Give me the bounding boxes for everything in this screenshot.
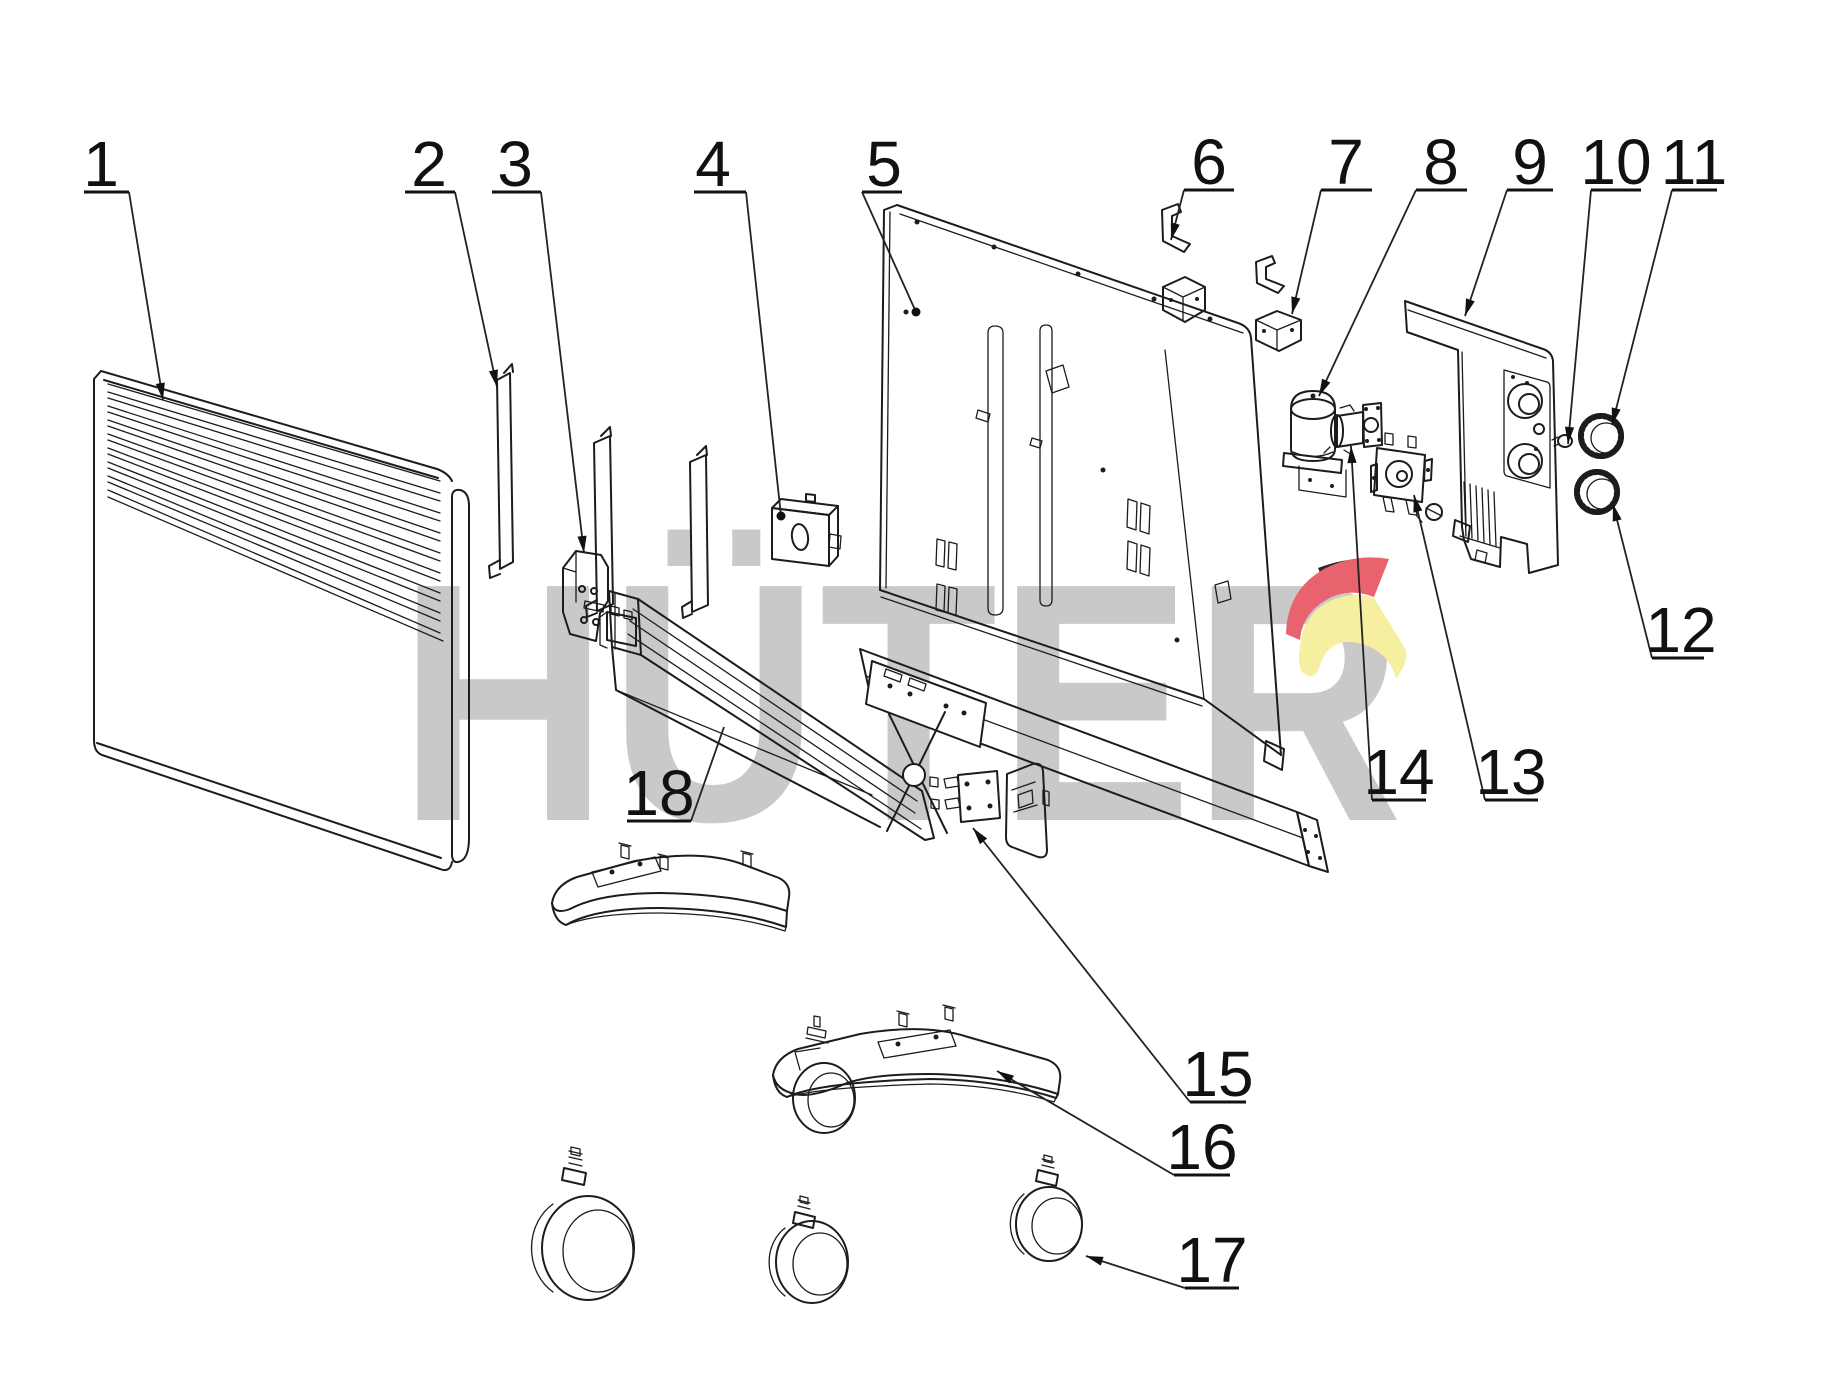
part-number-2: 2 [411,128,447,200]
part-number-6: 6 [1191,126,1227,198]
callout-17: 17 [1086,1224,1248,1296]
leader-dot [912,308,921,317]
caster-left [532,1147,634,1300]
part-number-12: 12 [1645,594,1716,666]
foot-lower [773,1005,1060,1133]
knob-upper [1579,414,1623,458]
caster-middle [769,1196,848,1303]
valve-bracket [1324,403,1382,455]
rotary-switch [1371,433,1432,522]
part-number-1: 1 [83,128,119,200]
leader-dot [777,512,786,521]
bracket-6b [1163,277,1205,322]
callout-4: 4 [694,128,786,521]
leader-line [129,192,163,400]
part-number-17: 17 [1176,1224,1247,1296]
callout-7: 7 [1291,126,1372,314]
leader-line [541,192,584,553]
callout-2: 2 [405,128,498,387]
callout-10: 10 [1565,126,1652,444]
part-number-11: 11 [1661,126,1727,198]
callout-9: 9 [1465,126,1553,316]
leader-line [1319,190,1416,396]
leader-arrowhead [1086,1256,1104,1266]
part-number-15: 15 [1182,1038,1253,1110]
leader-line [746,192,781,516]
leader-arrowhead [1413,495,1422,513]
part-number-18: 18 [623,757,694,829]
leader-line [1612,190,1672,425]
leader-arrowhead [489,369,498,387]
part-number-3: 3 [497,128,533,200]
leader-arrowhead [1613,504,1622,522]
part-number-7: 7 [1328,126,1364,198]
bracket-7b [1256,311,1301,351]
leader-line [1568,190,1591,444]
part-number-4: 4 [695,128,731,200]
leader-arrowhead [1465,298,1475,316]
leader-arrowhead [1291,296,1300,314]
part-number-9: 9 [1512,126,1548,198]
leader-line [1465,190,1507,316]
leader-line [455,192,497,387]
part-number-5: 5 [866,128,902,200]
part-number-13: 13 [1475,736,1546,808]
part-number-10: 10 [1580,126,1651,198]
knob-lower [1575,470,1619,514]
callout-12: 12 [1613,504,1717,666]
diagram-canvas: HÜTER [0,0,1821,1381]
part-number-8: 8 [1423,126,1459,198]
caster-right [1010,1155,1082,1261]
callout-6: 6 [1171,126,1234,240]
callout-1: 1 [83,128,165,400]
control-panel-bracket [1405,301,1558,573]
bracket-7a [1256,256,1284,293]
part-number-16: 16 [1166,1111,1237,1183]
leader-line [997,1071,1174,1175]
part-number-14: 14 [1363,736,1434,808]
leader-line [1292,190,1321,314]
callout-5: 5 [862,128,921,317]
exploded-parts-diagram: HÜTER [0,0,1821,1381]
